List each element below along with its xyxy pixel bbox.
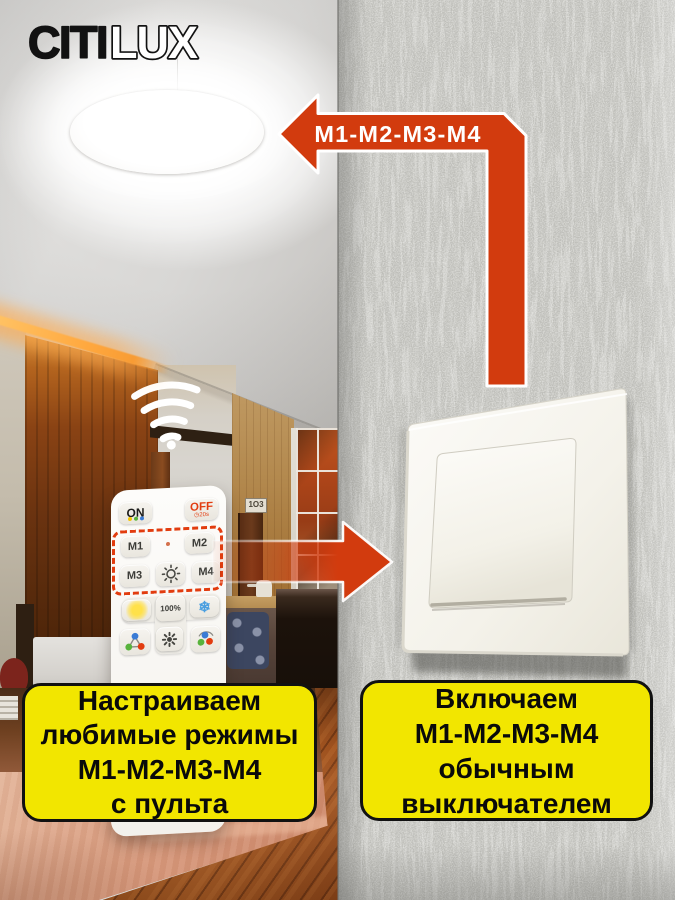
svg-text:CITI: CITI (28, 17, 107, 68)
svg-text:LUX: LUX (110, 17, 198, 68)
